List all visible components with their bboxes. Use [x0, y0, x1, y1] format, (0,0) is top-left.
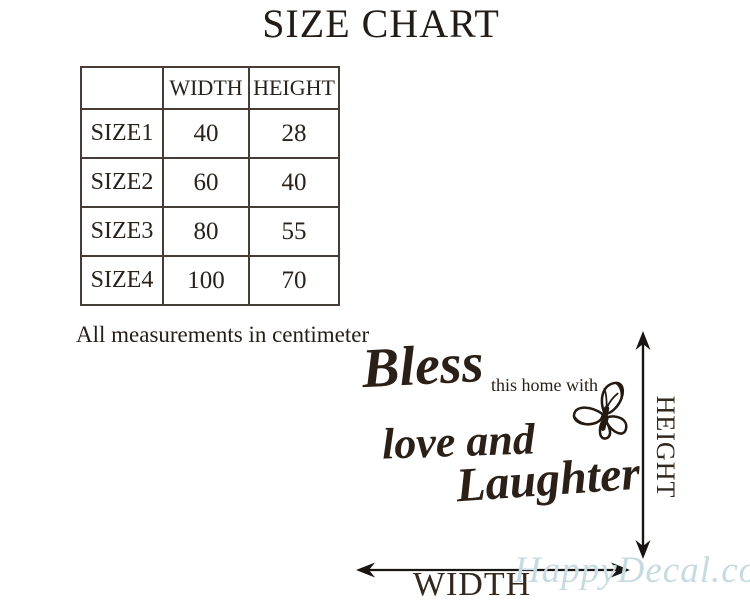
- measurements-note: All measurements in centimeter: [76, 322, 369, 348]
- width-value-cell: 40: [163, 109, 249, 158]
- decal-text-laughter: Laughter: [454, 446, 641, 514]
- size-name-cell: SIZE3: [81, 207, 163, 256]
- height-dimension-label: HEIGHT: [650, 396, 680, 499]
- height-value-cell: 70: [249, 256, 339, 305]
- width-value-cell: 60: [163, 158, 249, 207]
- watermark: HappyDecal.com: [514, 549, 750, 592]
- header-cell-blank: [81, 67, 163, 109]
- decal-text-bless: Bless: [360, 331, 485, 401]
- size-name-cell: SIZE2: [81, 158, 163, 207]
- page-title: SIZE CHART: [0, 0, 750, 48]
- height-value-cell: 55: [249, 207, 339, 256]
- table-row: SIZE4 100 70: [81, 256, 339, 305]
- header-cell-width: WIDTH: [163, 67, 249, 109]
- table-row: SIZE2 60 40: [81, 158, 339, 207]
- table-row: SIZE3 80 55: [81, 207, 339, 256]
- size-table: WIDTH HEIGHT SIZE1 40 28 SIZE2 60 40 SIZ…: [80, 66, 340, 306]
- table-header-row: WIDTH HEIGHT: [81, 67, 339, 109]
- height-value-cell: 28: [249, 109, 339, 158]
- width-value-cell: 100: [163, 256, 249, 305]
- size-name-cell: SIZE1: [81, 109, 163, 158]
- height-value-cell: 40: [249, 158, 339, 207]
- header-cell-height: HEIGHT: [249, 67, 339, 109]
- size-name-cell: SIZE4: [81, 256, 163, 305]
- width-value-cell: 80: [163, 207, 249, 256]
- table-row: SIZE1 40 28: [81, 109, 339, 158]
